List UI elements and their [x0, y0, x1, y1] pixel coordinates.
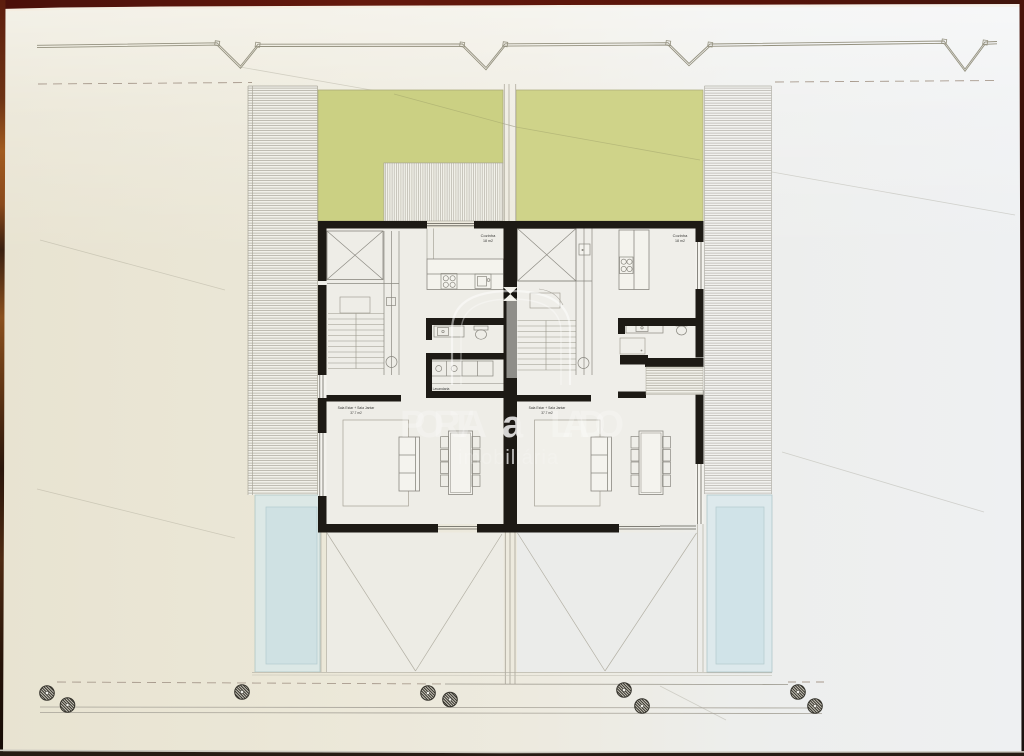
svg-text:LADO: LADO	[550, 404, 624, 446]
svg-text:18 m2: 18 m2	[675, 239, 685, 243]
svg-text:PORTA: PORTA	[400, 404, 487, 446]
svg-text:Cozinha: Cozinha	[673, 233, 688, 238]
svg-text:Sala Estar + Sala Jantar: Sala Estar + Sala Jantar	[338, 406, 376, 410]
svg-text:Cozinha: Cozinha	[481, 233, 496, 238]
svg-text:Lavandaria: Lavandaria	[433, 387, 450, 391]
svg-text:18 m2: 18 m2	[483, 239, 493, 243]
svg-text:37.7 m2: 37.7 m2	[350, 411, 362, 415]
